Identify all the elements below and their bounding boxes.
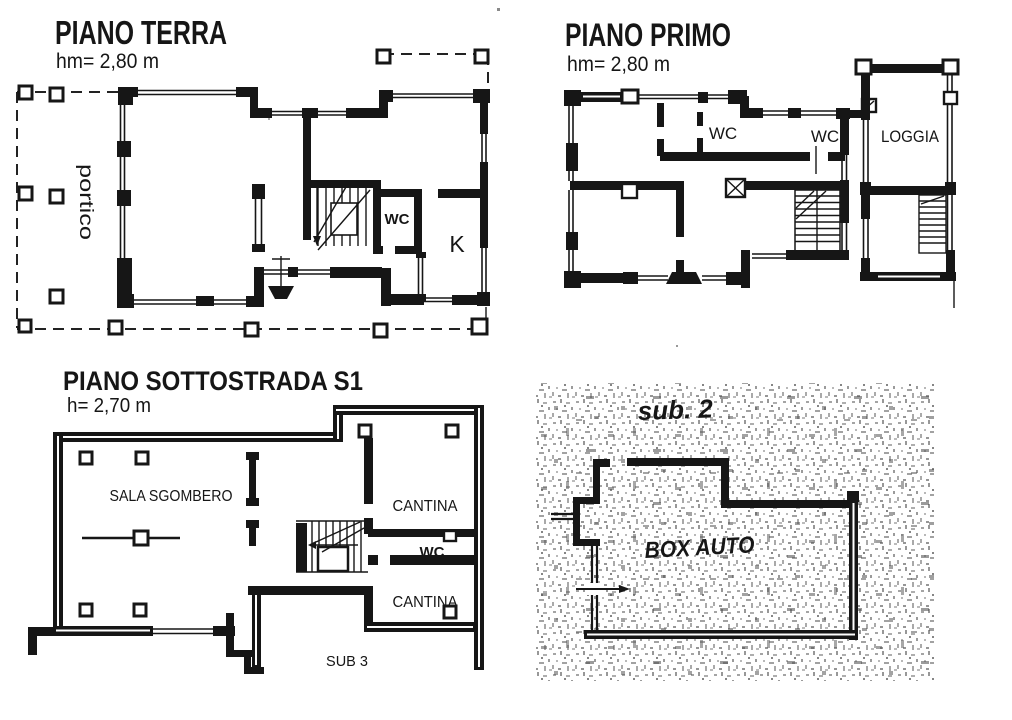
staircase-terra xyxy=(313,184,370,250)
piano-primo-title: PIANO PRIMO xyxy=(565,17,731,53)
shaft-x-box xyxy=(726,179,745,197)
piano-terra-height-label: hm= 2,80 m xyxy=(56,50,159,73)
room-label-wc-sottostrada: WC xyxy=(420,544,445,561)
piano-terra-title: PIANO TERRA xyxy=(55,14,227,51)
staircase-primo xyxy=(795,190,840,253)
room-label-cantina-1: CANTINA xyxy=(393,498,459,515)
room-label-sub-3: SUB 3 xyxy=(326,654,368,670)
piano-sottostrada-title: PIANO SOTTOSTRADA S1 xyxy=(63,366,363,396)
floorplan-scan-page: PIANO TERRA hm= 2,80 m xyxy=(0,0,1012,720)
room-label-wc-primo-1: WC xyxy=(709,124,737,143)
room-label-sala-sgombero: SALA SGOMBERO xyxy=(110,488,233,505)
piano-primo-height-label: hm= 2,80 m xyxy=(567,53,670,76)
staircase-loggia xyxy=(919,195,946,253)
room-label-wc-primo-2: WC xyxy=(811,127,839,146)
piano-terra-plan: PIANO TERRA hm= 2,80 m xyxy=(17,14,490,337)
room-label-loggia: LOGGIA xyxy=(881,128,939,146)
lamp-symbol xyxy=(268,256,294,299)
scanned-floorplan-svg: PIANO TERRA hm= 2,80 m xyxy=(0,0,1012,720)
staircase-sottostrada xyxy=(296,521,368,572)
room-label-kitchen: K xyxy=(449,231,465,257)
room-label-wc-terra: WC xyxy=(385,211,410,228)
room-label-cantina-2: CANTINA xyxy=(393,594,459,611)
sub2-plan: sub. 2 BOX AUTO xyxy=(536,383,934,681)
room-label-portico: portico xyxy=(75,164,96,240)
sub2-title: sub. 2 xyxy=(637,393,714,426)
piano-primo-plan: PIANO PRIMO hm= 2,80 m xyxy=(564,17,958,308)
piano-sottostrada-plan: PIANO SOTTOSTRADA S1 h= 2,70 m xyxy=(28,366,484,674)
piano-sottostrada-height-label: h= 2,70 m xyxy=(67,395,151,417)
